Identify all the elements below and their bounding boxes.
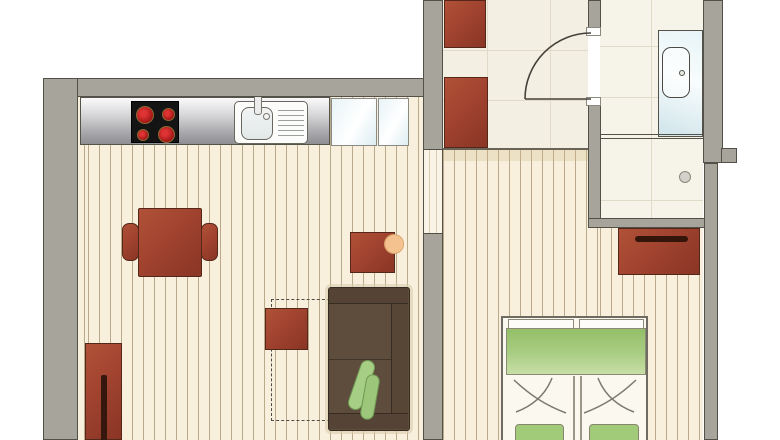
floor-plan [0,0,780,440]
burner-icon [158,126,175,143]
burner-icon [136,106,154,124]
passage-plank-line-1 [429,150,430,233]
hall-tile-line-v2 [550,0,551,150]
bath-tile-line-h3 [600,200,703,201]
faucet-tap-dot [263,113,270,120]
bed-duvet [506,328,646,375]
shower-drain [679,171,691,183]
dining-chair-left [122,223,139,261]
kitchen-sink [234,101,308,144]
passage-plank-line-2 [436,150,437,233]
sofa [328,287,410,431]
glass-appliance-2 [378,98,409,146]
bed-mattress-divider-1 [573,376,575,440]
hall-tile-line-h1 [443,50,588,51]
bathtub [658,30,703,137]
wall-bedroom-right [704,163,718,440]
sofa-seat-seam [329,359,391,360]
coffee-table [265,308,308,350]
wall-bath-left-lower [588,104,601,228]
wall-left [43,78,78,440]
bed-mattress-divider-2 [580,376,582,440]
wall-bath-left-upper [588,0,601,28]
drainboard-line [278,115,304,116]
double-bed [501,316,648,440]
bath-tile-line-v [651,0,652,218]
sideboard-cabinet [85,343,122,440]
hall-wardrobe-upper [444,0,486,48]
decor-ring [385,235,403,253]
wall-top [43,78,443,97]
kitchen-counter [80,97,330,145]
drainboard-line [278,110,304,111]
sofa-backrest [391,304,408,413]
dresser-handle [635,236,688,242]
bathtub-edge-line-1 [600,134,703,135]
wall-divider-upper [423,0,443,150]
bed-pillow-left [515,424,564,440]
passage-floor [423,150,443,233]
stove-top [131,101,179,143]
drainboard-line [278,120,304,121]
bathtub-drain-dot [679,70,685,76]
burner-icon [162,108,175,121]
drainboard-line [278,135,304,136]
cabinet-handle [101,375,107,440]
dining-table [138,208,202,277]
door-jamb-bottom [586,97,601,106]
wall-bath-right [703,0,723,163]
drainboard-line [278,125,304,126]
door-jamb-top [586,27,601,36]
hall-wardrobe-lower [444,77,488,148]
drainboard-line [278,130,304,131]
wall-bath-bottom [588,218,707,228]
dining-chair-right [201,223,218,261]
sofa-armrest-top [329,288,408,304]
wall-divider-lower [423,233,443,440]
bed-pillow-right [589,424,639,440]
nightstand-dresser [618,228,700,275]
floor-transition-band [443,150,588,161]
bathtub-basin [662,47,690,98]
bathtub-edge-line-2 [600,138,703,139]
glass-appliance-1 [331,98,377,146]
burner-icon [137,129,149,141]
wall-right-stub [721,148,737,163]
